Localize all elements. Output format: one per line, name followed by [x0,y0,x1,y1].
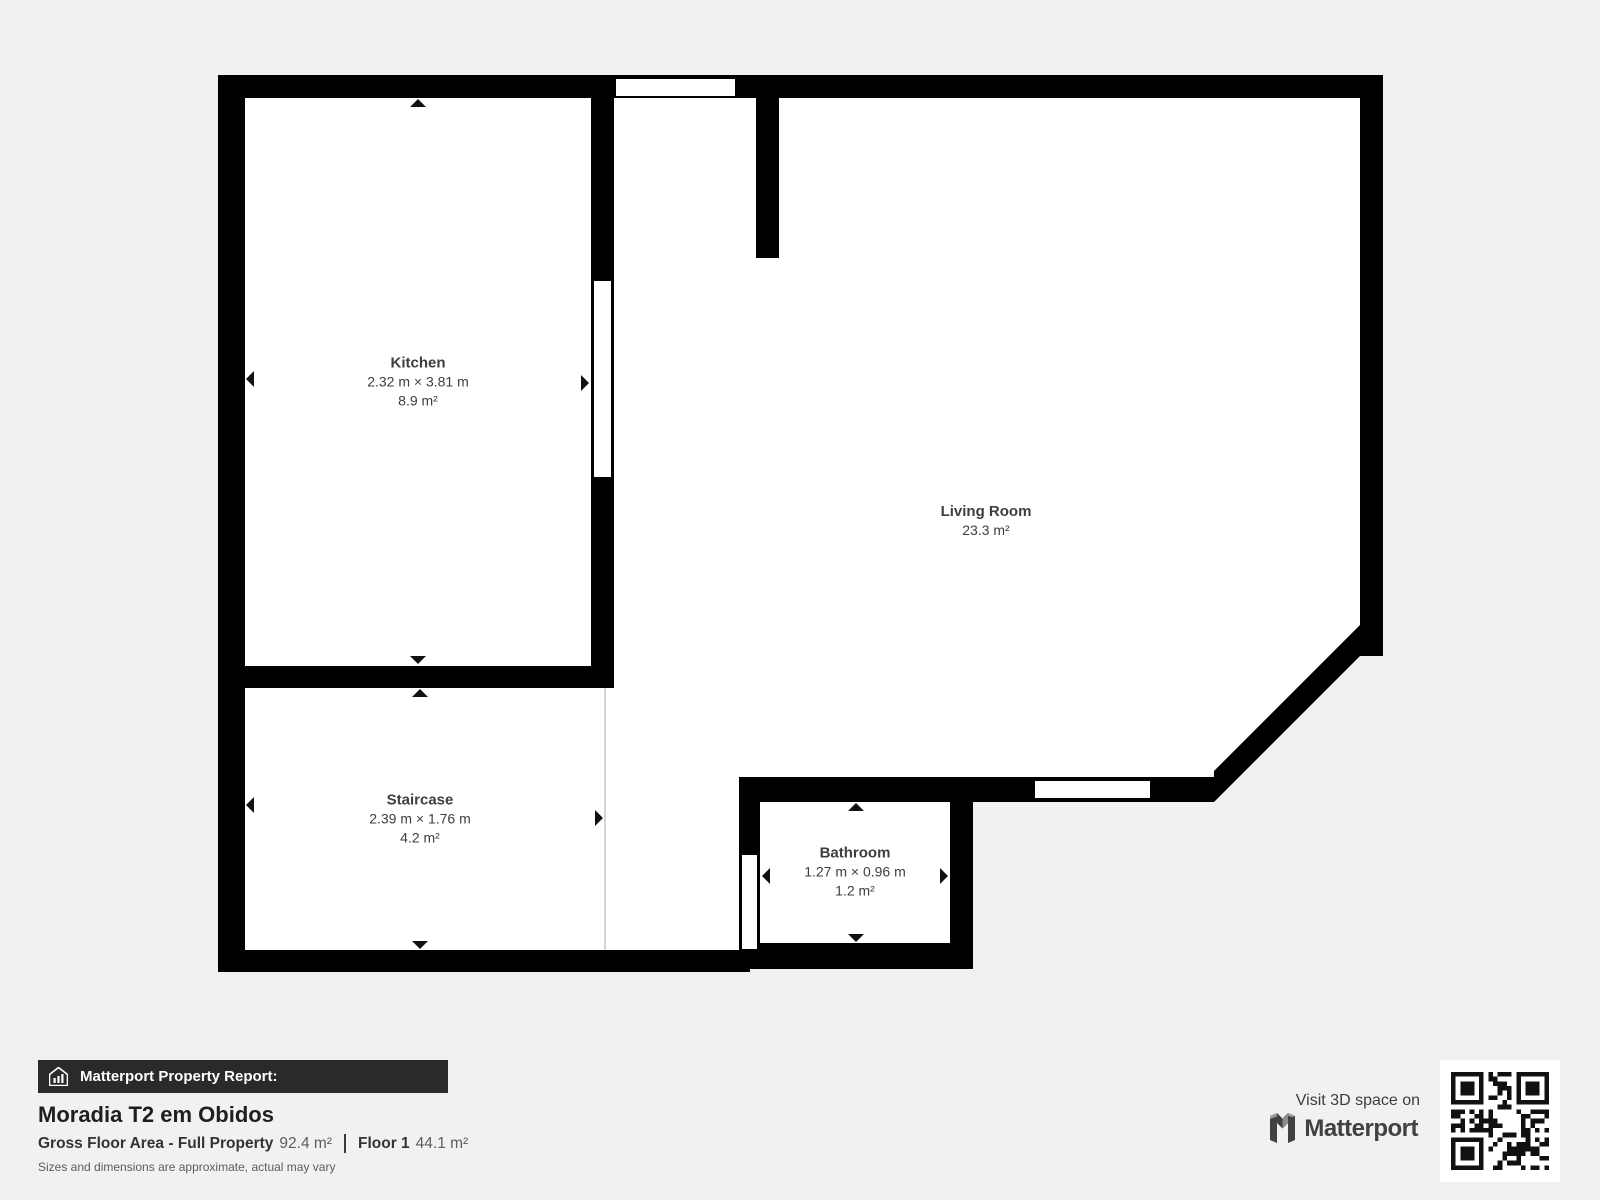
bathroom-area: 1.2 m² [804,882,906,901]
wall-left [218,75,245,972]
wall-right [1360,75,1383,656]
staircase-edge-line [604,688,606,950]
wall-kitchen-bottom [218,666,614,688]
living-room-label: Living Room 23.3 m² [941,502,1032,540]
qr-code-card [1440,1060,1560,1182]
stats-divider [344,1134,346,1153]
report-bar-label: Matterport Property Report: [80,1068,278,1085]
floor-value: 44.1 m² [416,1135,469,1153]
floor-plan-page: { "plan": { "rooms": [ { "id": "kitchen"… [0,0,1600,1200]
bathroom-label: Bathroom 1.27 m × 0.96 m 1.2 m² [804,844,906,901]
window-kitchen [594,281,611,477]
bathroom-name: Bathroom [804,844,906,863]
kitchen-name: Kitchen [367,354,469,373]
kitchen-dimensions: 2.32 m × 3.81 m [367,373,469,392]
staircase-name: Staircase [369,791,471,810]
kitchen-label: Kitchen 2.32 m × 3.81 m 8.9 m² [367,354,469,411]
wall-bathroom-top [739,777,973,802]
gross-floor-area-label: Gross Floor Area - Full Property [38,1135,273,1153]
qr-code [1451,1072,1549,1170]
house-report-icon [49,1067,68,1086]
wall-top [218,75,1383,98]
visit-3d-label: Visit 3D space on [1296,1092,1420,1110]
living-room-area: 23.3 m² [941,521,1032,540]
floor-plan-drawing [0,0,1600,1200]
kitchen-area: 8.9 m² [367,392,469,411]
staircase-label: Staircase 2.39 m × 1.76 m 4.2 m² [369,791,471,848]
floor-label: Floor 1 [358,1135,410,1153]
living-room-name: Living Room [941,502,1032,521]
gross-floor-area-value: 92.4 m² [279,1135,332,1153]
door-bathroom [742,855,757,949]
door-opening-top [616,79,735,96]
floor-area-stats: Gross Floor Area - Full Property 92.4 m²… [38,1134,468,1153]
wall-bottom-left [218,950,750,972]
property-name: Moradia T2 em Obidos [38,1102,274,1128]
window-livingroom [1035,781,1150,798]
matterport-m-icon [1269,1113,1296,1144]
matterport-wordmark: Matterport [1304,1115,1418,1143]
staircase-area: 4.2 m² [369,829,471,848]
matterport-logo: Matterport [1269,1113,1418,1144]
bathroom-dimensions: 1.27 m × 0.96 m [804,863,906,882]
report-title-bar: Matterport Property Report: [38,1060,448,1093]
disclaimer-text: Sizes and dimensions are approximate, ac… [38,1160,335,1174]
wall-livingroom-partition [756,98,779,258]
wall-bathroom-bottom [739,943,973,969]
staircase-dimensions: 2.39 m × 1.76 m [369,810,471,829]
wall-bathroom-right [950,777,973,969]
